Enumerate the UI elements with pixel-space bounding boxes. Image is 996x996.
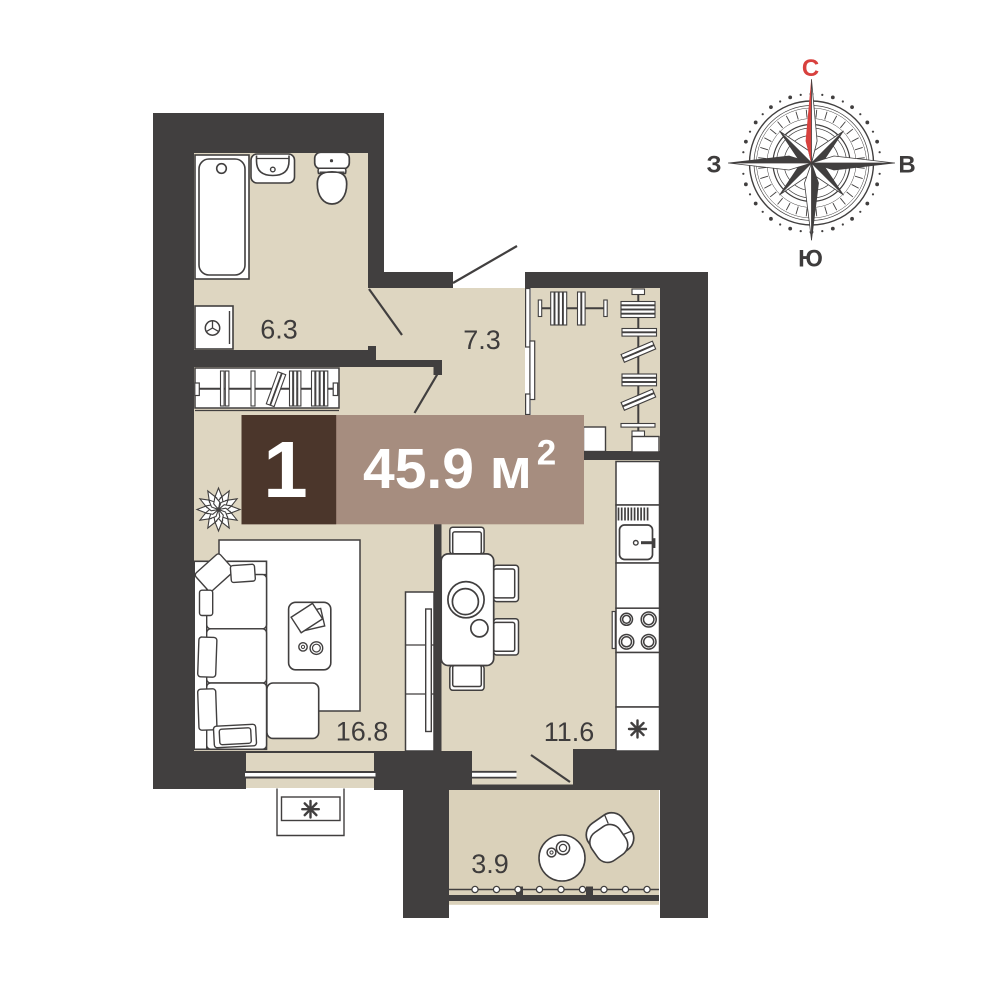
svg-text:45.9 м: 45.9 м bbox=[363, 437, 532, 501]
svg-text:З: З bbox=[706, 152, 721, 179]
svg-text:2: 2 bbox=[537, 434, 556, 473]
svg-text:3.9: 3.9 bbox=[471, 849, 509, 879]
svg-text:7.3: 7.3 bbox=[463, 325, 501, 355]
svg-text:16.8: 16.8 bbox=[336, 717, 389, 747]
svg-text:Ю: Ю bbox=[798, 246, 823, 273]
svg-text:В: В bbox=[898, 152, 915, 179]
svg-text:1: 1 bbox=[263, 425, 308, 514]
svg-text:11.6: 11.6 bbox=[544, 717, 595, 747]
svg-text:С: С bbox=[802, 55, 819, 82]
svg-text:6.3: 6.3 bbox=[260, 315, 298, 345]
